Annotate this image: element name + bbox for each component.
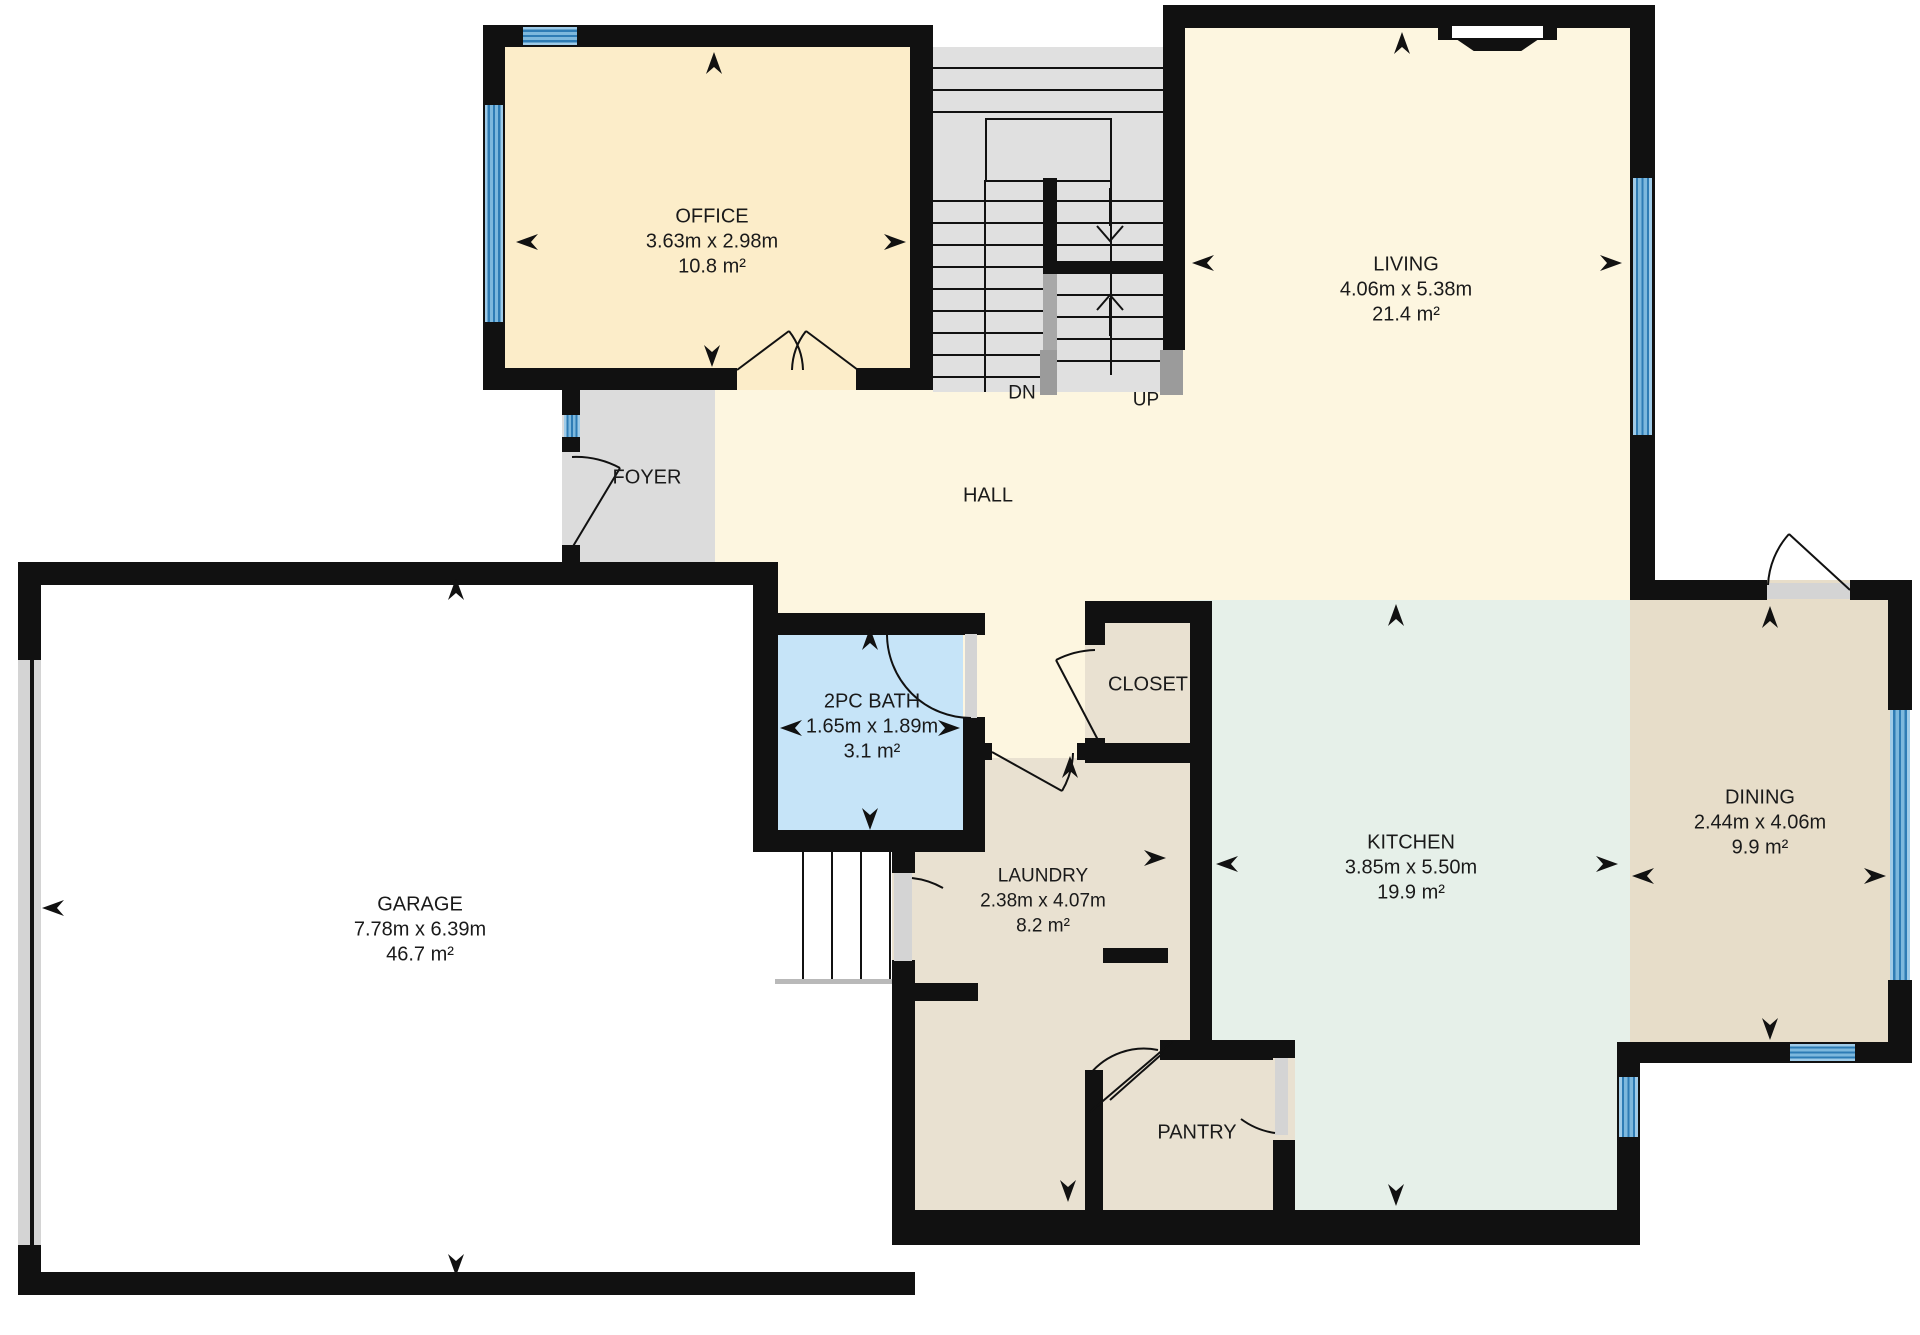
dining-door-arc	[1768, 534, 1789, 585]
laundry-area: 8.2 m²	[980, 914, 1106, 939]
room-label-pantry: PANTRY	[1157, 1121, 1236, 1146]
bath-name: 2PC BATH	[806, 690, 938, 715]
closet-name: CLOSET	[1108, 673, 1188, 698]
living-dimensions: 4.06m x 5.38m	[1340, 278, 1472, 303]
room-label-closet: CLOSET	[1108, 673, 1188, 698]
garage-name: GARAGE	[354, 893, 486, 918]
dining-dimensions: 2.44m x 4.06m	[1694, 811, 1826, 836]
bath-dimensions: 1.65m x 1.89m	[806, 715, 938, 740]
garage-dimensions: 7.78m x 6.39m	[354, 918, 486, 943]
stairs-down-label: DN	[1008, 381, 1035, 406]
room-label-laundry: LAUNDRY 2.38m x 4.07m 8.2 m²	[980, 864, 1106, 939]
dining-name: DINING	[1694, 786, 1826, 811]
closet-door-arc	[1056, 650, 1095, 660]
room-label-hall: HALL	[963, 484, 1013, 509]
floorplan-canvas: OFFICE 3.63m x 2.98m 10.8 m² LIVING 4.06…	[0, 0, 1920, 1335]
laundry-dimensions: 2.38m x 4.07m	[980, 889, 1106, 914]
closet-door-leaf	[1056, 660, 1098, 740]
office-door-leaf	[737, 331, 789, 370]
stairs-up-arrow-icon	[1097, 295, 1123, 336]
pantry-kitchen-door-arc	[1241, 1119, 1275, 1133]
room-label-foyer: FOYER	[613, 466, 682, 491]
office-dimensions: 3.63m x 2.98m	[646, 230, 778, 255]
pantry-diagonal-door-arc	[1090, 1049, 1158, 1074]
dining-door-leaf	[1789, 534, 1850, 590]
hall-name: HALL	[963, 484, 1013, 509]
foyer-name: FOYER	[613, 466, 682, 491]
pantry-diagonal-wall	[1090, 1042, 1172, 1112]
room-label-dining: DINING 2.44m x 4.06m 9.9 m²	[1694, 786, 1826, 861]
kitchen-name: KITCHEN	[1345, 831, 1477, 856]
room-label-kitchen: KITCHEN 3.85m x 5.50m 19.9 m²	[1345, 831, 1477, 906]
pantry-name: PANTRY	[1157, 1121, 1236, 1146]
laundry-name: LAUNDRY	[980, 864, 1106, 889]
up-text: UP	[1133, 388, 1159, 413]
kitchen-dimensions: 3.85m x 5.50m	[1345, 856, 1477, 881]
office-area: 10.8 m²	[646, 255, 778, 280]
room-label-garage: GARAGE 7.78m x 6.39m 46.7 m²	[354, 893, 486, 968]
dining-area: 9.9 m²	[1694, 836, 1826, 861]
dn-text: DN	[1008, 381, 1035, 406]
garage-area: 46.7 m²	[354, 943, 486, 968]
pantry-diagonal-door-slab	[1110, 1053, 1163, 1100]
kitchen-area: 19.9 m²	[1345, 881, 1477, 906]
garage-steps-door-arc	[912, 878, 943, 888]
office-door-leaf	[806, 331, 858, 370]
door-swing-overlay	[0, 0, 1920, 1335]
living-name: LIVING	[1340, 253, 1472, 278]
office-name: OFFICE	[646, 205, 778, 230]
stairs-down-arrow-icon	[1097, 188, 1123, 241]
room-label-office: OFFICE 3.63m x 2.98m 10.8 m²	[646, 205, 778, 280]
room-label-living: LIVING 4.06m x 5.38m 21.4 m²	[1340, 253, 1472, 328]
living-area: 21.4 m²	[1340, 303, 1472, 328]
bath-area: 3.1 m²	[806, 740, 938, 765]
laundry-door-leaf	[992, 752, 1062, 791]
stairs-up-label: UP	[1133, 388, 1159, 413]
room-label-bath: 2PC BATH 1.65m x 1.89m 3.1 m²	[806, 690, 938, 765]
